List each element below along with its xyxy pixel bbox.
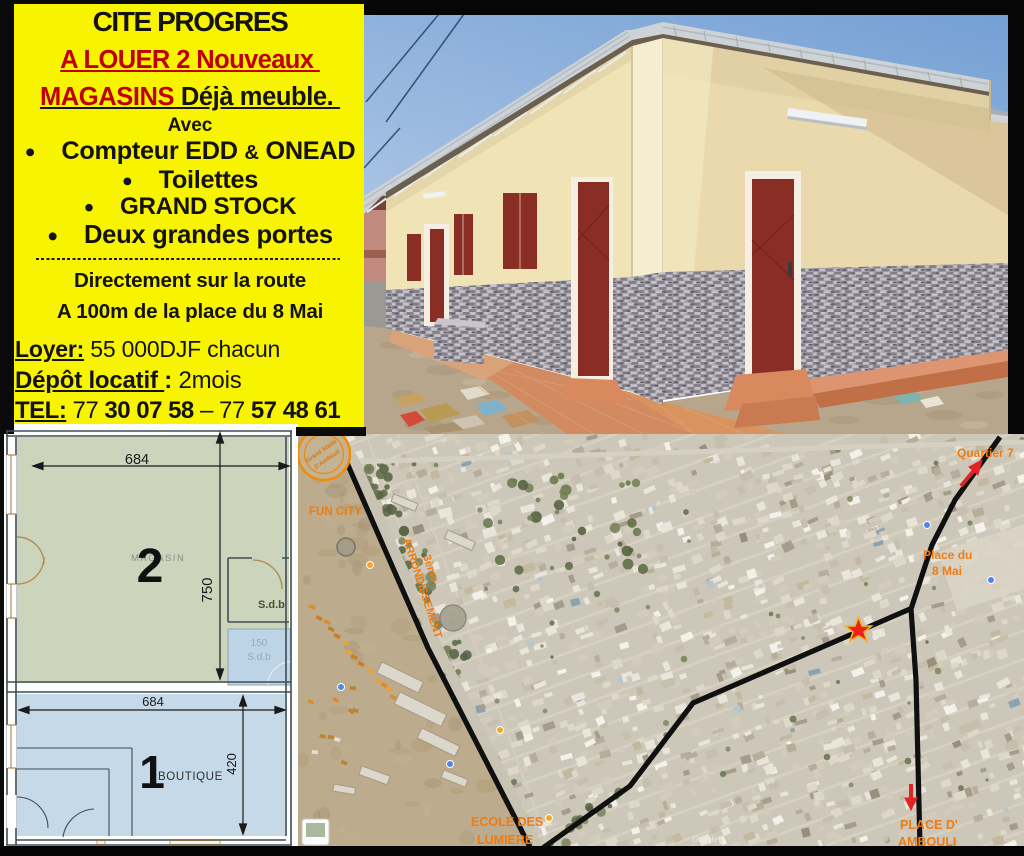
svg-text:S.d.b: S.d.b: [258, 599, 285, 611]
svg-text:PLACE D': PLACE D': [900, 818, 958, 832]
svg-text:684: 684: [142, 694, 164, 709]
svg-text:LUMIERE: LUMIERE: [477, 833, 533, 847]
svg-text:Google: Google: [692, 835, 718, 844]
svg-text:S.d.b: S.d.b: [247, 652, 271, 663]
svg-text:8 Mai: 8 Mai: [932, 564, 962, 578]
svg-text:BOUTIQUE: BOUTIQUE: [158, 771, 223, 783]
svg-text:ECOLE DES: ECOLE DES: [471, 815, 543, 829]
svg-text:Place du: Place du: [923, 548, 972, 562]
svg-text:684: 684: [125, 452, 149, 468]
svg-text:Quartier 7: Quartier 7: [957, 446, 1014, 460]
svg-text:FUN CITY: FUN CITY: [309, 506, 362, 518]
svg-text:420: 420: [224, 753, 239, 775]
svg-text:150: 150: [251, 638, 268, 649]
svg-text:750: 750: [199, 577, 216, 602]
svg-text:2: 2: [137, 540, 164, 593]
